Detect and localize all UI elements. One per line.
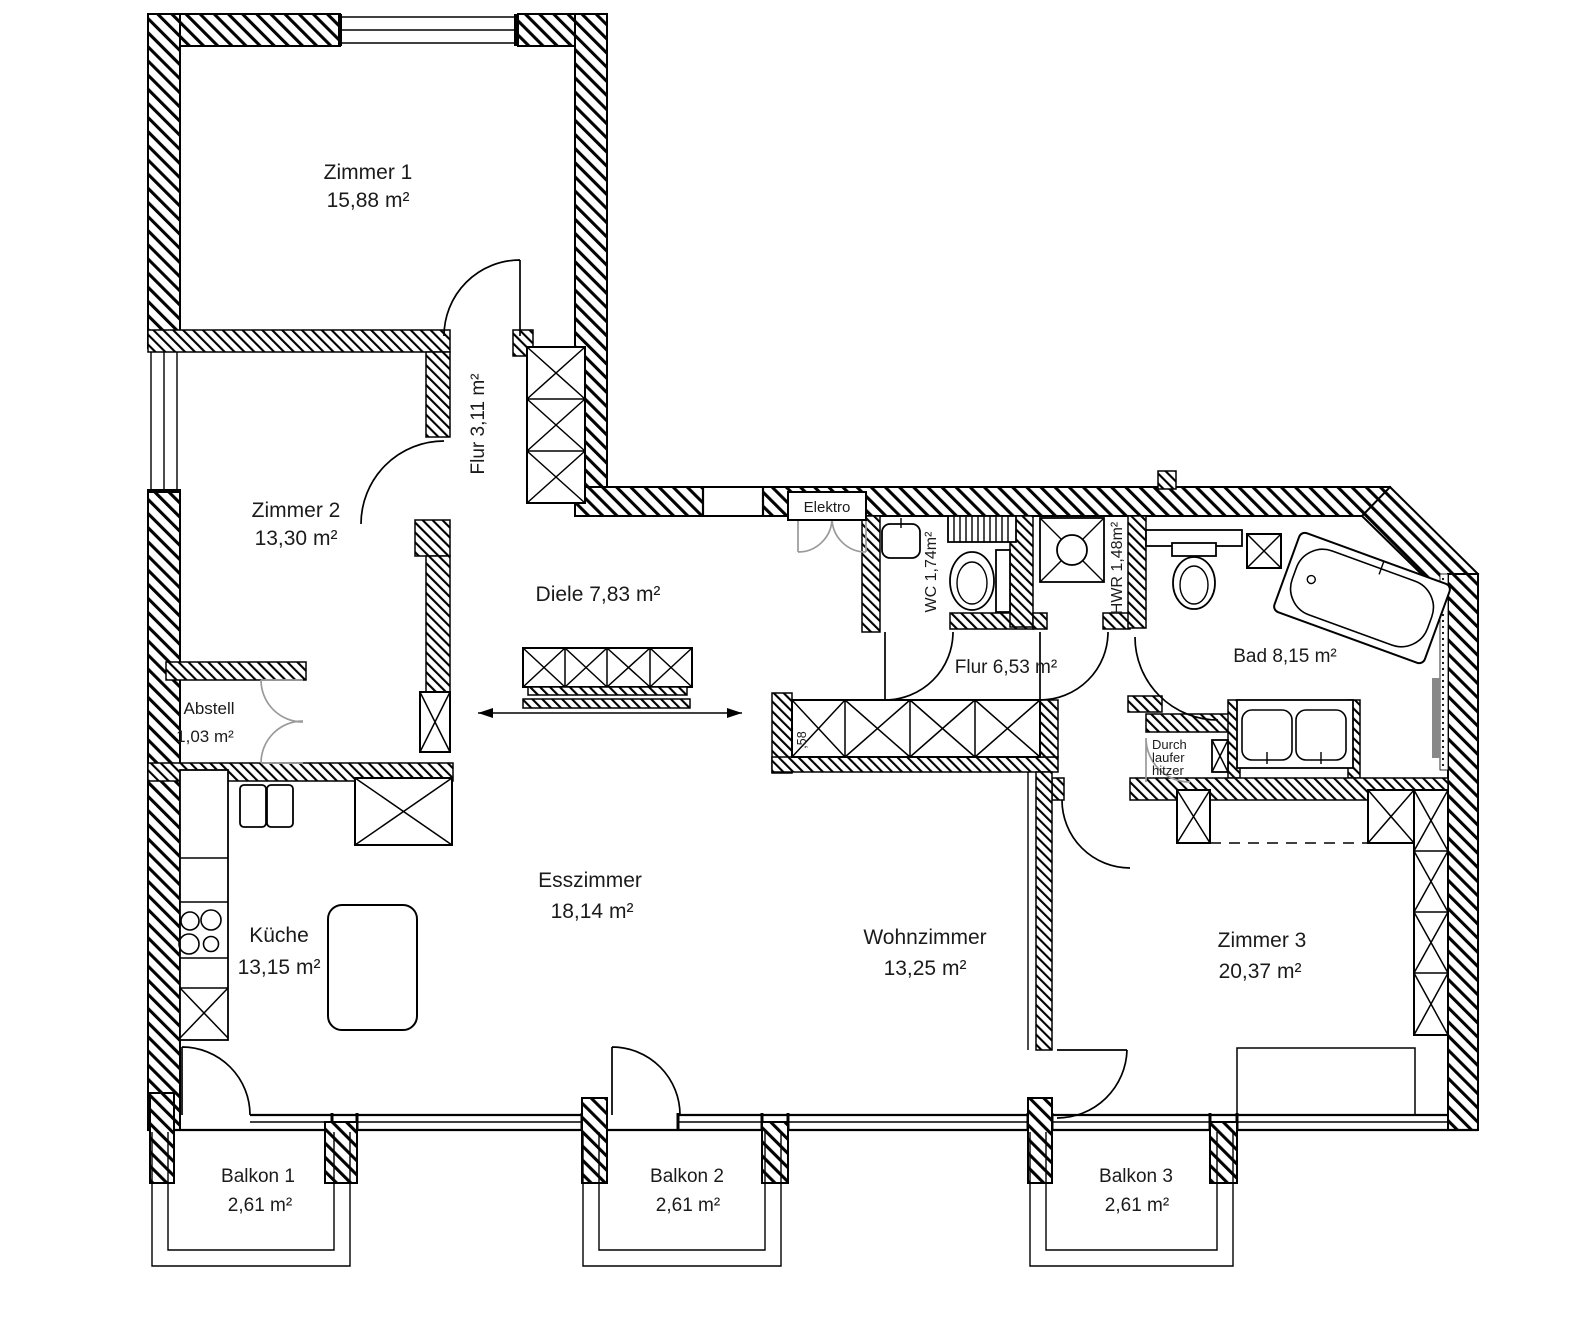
kitchen-unit-box bbox=[355, 778, 452, 845]
wardrobe-zimmer3-column bbox=[1414, 790, 1448, 1035]
label-bad: Bad 8,15 m² bbox=[1233, 646, 1337, 667]
wc-sink bbox=[882, 518, 920, 558]
kitchen-counter bbox=[180, 770, 228, 1040]
label-wardrobe-depth: ,58 bbox=[795, 731, 809, 748]
label-balkon2-area: 2,61 m² bbox=[656, 1195, 720, 1216]
wardrobe-wohnzimmer bbox=[792, 700, 1040, 757]
label-balkon2-name: Balkon 2 bbox=[650, 1166, 724, 1187]
bad-vanity-double-basin bbox=[1237, 700, 1353, 768]
wc-radiator bbox=[948, 516, 1016, 542]
label-wohnzimmer-name: Wohnzimmer bbox=[863, 926, 986, 949]
towel-radiator bbox=[1432, 678, 1440, 758]
label-balkon1-area: 2,61 m² bbox=[228, 1195, 292, 1216]
label-esszimmer-area: 18,14 m² bbox=[551, 900, 634, 923]
label-zimmer3-area: 20,37 m² bbox=[1219, 960, 1302, 983]
floor-plan-drawing: Zimmer 1 15,88 m² Zimmer 2 13,30 m² Flur… bbox=[0, 0, 1584, 1320]
label-balkon1-name: Balkon 1 bbox=[221, 1166, 295, 1187]
label-flur-gross: Flur 6,53 m² bbox=[955, 657, 1057, 678]
kitchen-table bbox=[328, 905, 417, 1030]
label-wc: WC 1,74m² bbox=[923, 531, 940, 613]
wardrobe-flur bbox=[527, 347, 585, 503]
label-elektro: Elektro bbox=[804, 499, 851, 516]
label-zimmer1-area: 15,88 m² bbox=[327, 189, 410, 212]
wardrobe-diele bbox=[523, 648, 692, 708]
closet-box-zimmer3-right bbox=[1368, 790, 1414, 843]
window-zimmer2-left bbox=[148, 345, 180, 493]
floor-plan: Zimmer 1 15,88 m² Zimmer 2 13,30 m² Flur… bbox=[0, 0, 1584, 1320]
window-zimmer1-top bbox=[338, 14, 518, 46]
hwr-washing-machine bbox=[1040, 518, 1104, 582]
label-wohnzimmer-area: 13,25 m² bbox=[884, 957, 967, 980]
label-balkon3-area: 2,61 m² bbox=[1105, 1195, 1169, 1216]
label-zimmer3-name: Zimmer 3 bbox=[1218, 929, 1307, 952]
label-zimmer2-name: Zimmer 2 bbox=[252, 499, 341, 522]
label-diele: Diele 7,83 m² bbox=[536, 583, 661, 606]
label-zimmer2-area: 13,30 m² bbox=[255, 527, 338, 550]
label-abstell-name: Abstell bbox=[183, 699, 234, 718]
label-durchlauferhitzer-3: hitzer bbox=[1152, 763, 1184, 778]
label-zimmer1-name: Zimmer 1 bbox=[324, 161, 413, 184]
label-kueche-name: Küche bbox=[249, 924, 309, 947]
wc-toilet bbox=[950, 550, 1010, 612]
label-kueche-area: 13,15 m² bbox=[238, 956, 321, 979]
closet-box-zimmer3-left bbox=[1177, 790, 1210, 843]
vent-box-bad bbox=[1247, 534, 1281, 568]
label-hwr: HWR 1,48m² bbox=[1109, 521, 1126, 614]
bad-toilet bbox=[1172, 543, 1216, 609]
label-flur-klein: Flur 3,11 m² bbox=[468, 373, 489, 474]
fridge bbox=[240, 785, 293, 827]
water-heater-unit bbox=[1212, 740, 1228, 772]
label-abstell-area: 1,03 m² bbox=[176, 727, 234, 746]
duct-box-zimmer2-wall bbox=[420, 692, 450, 752]
label-esszimmer-name: Esszimmer bbox=[538, 869, 642, 892]
label-balkon3-name: Balkon 3 bbox=[1099, 1166, 1173, 1187]
